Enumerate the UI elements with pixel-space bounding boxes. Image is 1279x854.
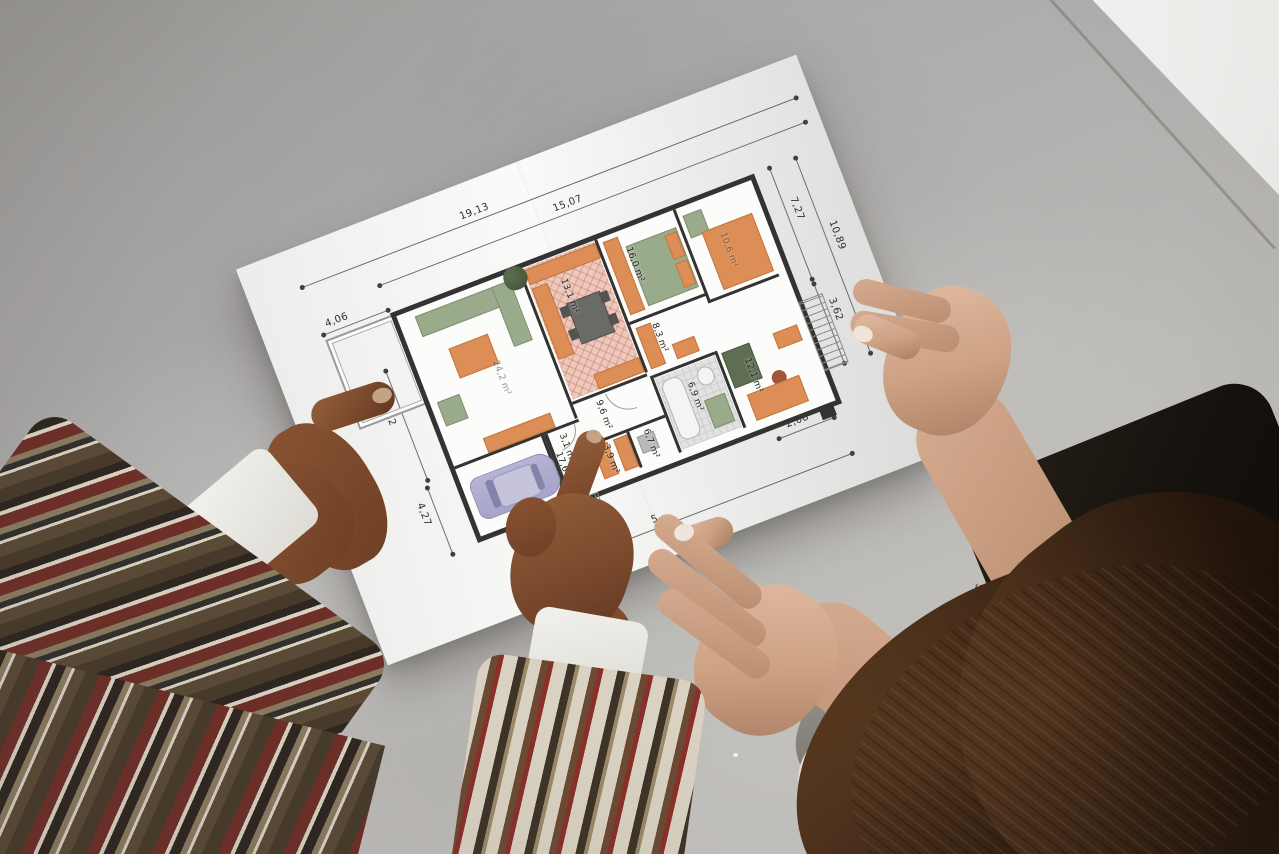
photo-vignette [0, 0, 1279, 854]
photo-scene: 19,13 15,07 4,06 7,27 10,89 3,62 2,08 6,… [0, 0, 1279, 854]
